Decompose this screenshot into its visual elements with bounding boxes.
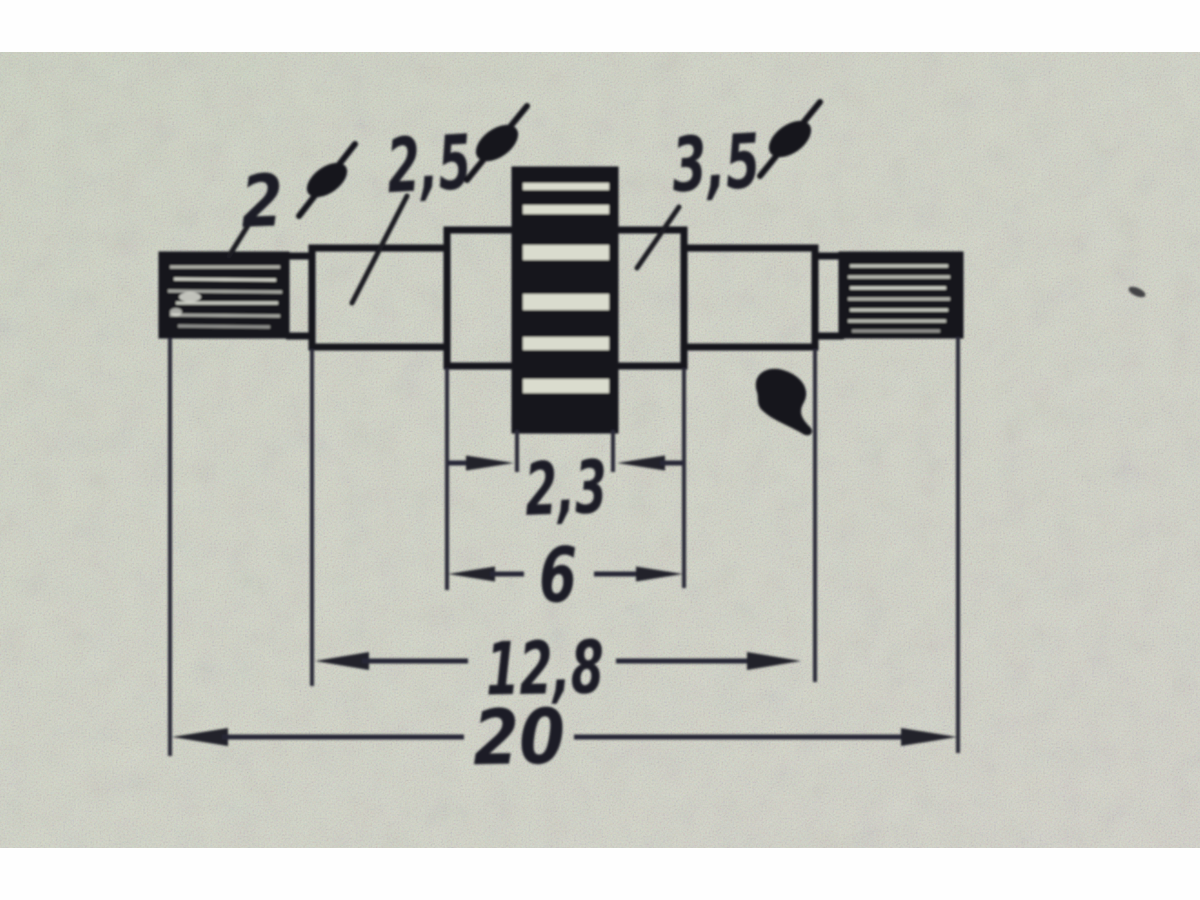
dimension-label-6: 6 [539, 531, 577, 620]
shaft-drawing-canvas: 2,3 6 12,8 20 2 [0, 0, 1200, 900]
diameter-label-3-5: 3,5 [670, 117, 762, 209]
left-knurl-section [162, 255, 286, 335]
diameter-label-2: 2 [240, 158, 285, 243]
gear-section [515, 170, 615, 430]
photo-of-technical-drawing: 2,3 6 12,8 20 2 [0, 0, 1200, 900]
diameter-label-2-5: 2,5 [385, 118, 473, 210]
right-knurl-section [842, 255, 960, 335]
dimension-label-2-3: 2,3 [524, 445, 609, 533]
dimension-label-20: 20 [472, 692, 566, 783]
